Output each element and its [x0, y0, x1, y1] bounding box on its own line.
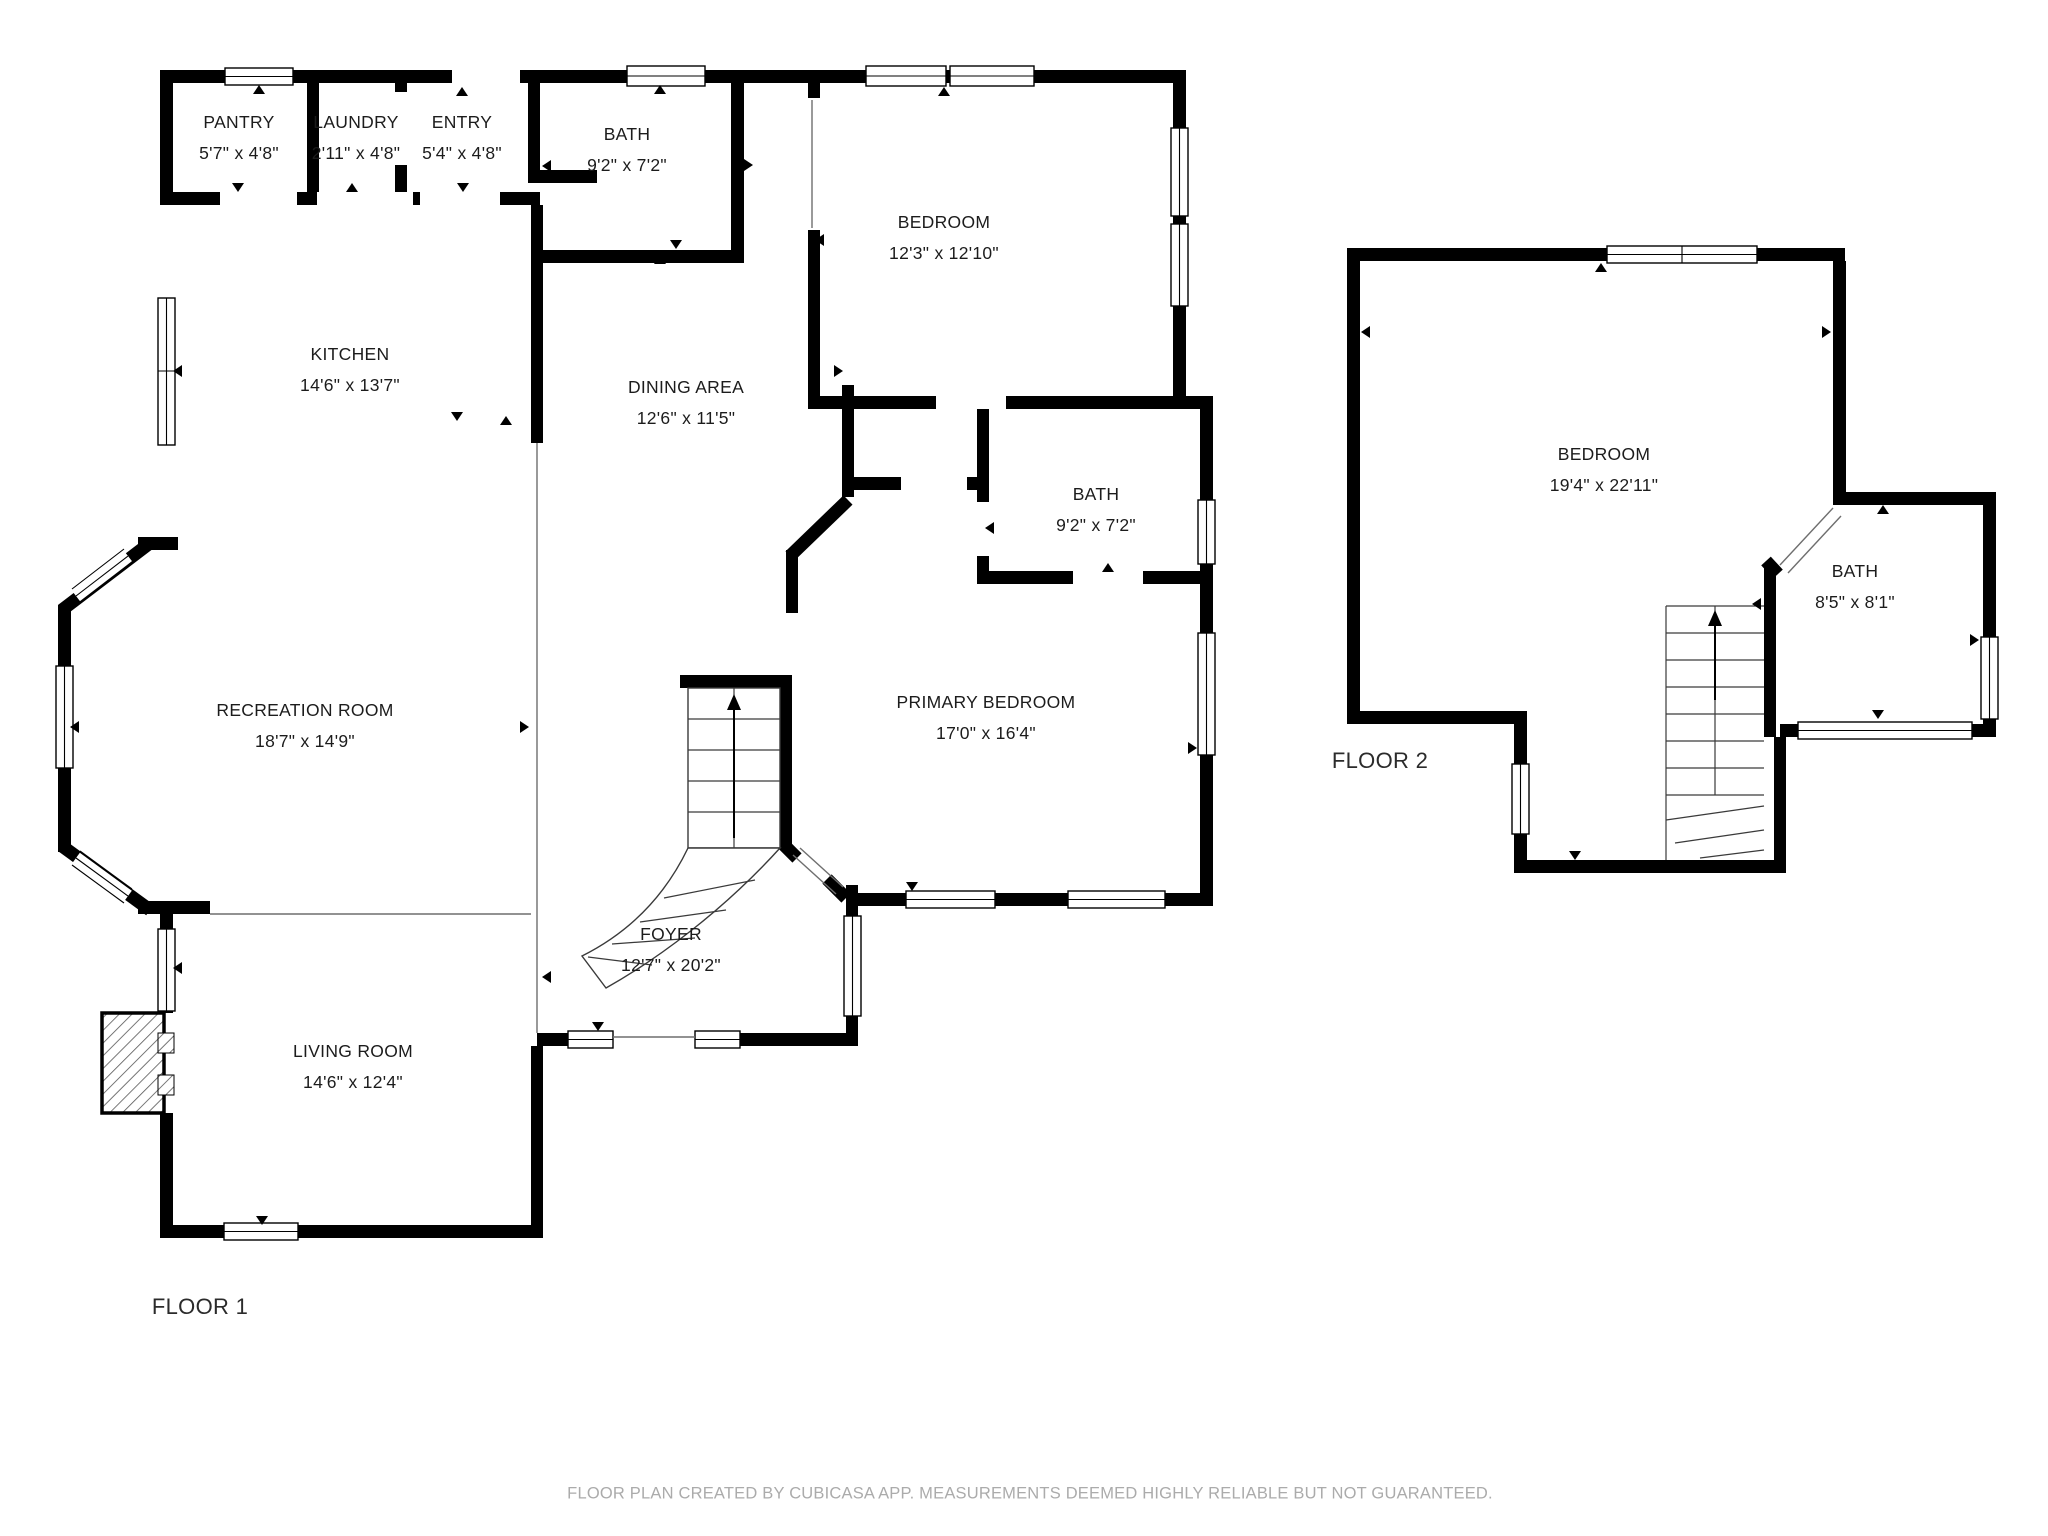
- room-label-bedroom-2: BEDROOM19'4" x 22'11": [1550, 444, 1659, 496]
- window-icon: [1512, 246, 1998, 834]
- floor-1-plan: [56, 66, 1215, 1240]
- room-name: BATH: [587, 124, 667, 145]
- room-name: BATH: [1056, 484, 1136, 505]
- room-label-bath-2: BATH9'2" x 7'2": [1056, 484, 1136, 536]
- room-name: KITCHEN: [300, 344, 400, 365]
- room-dimensions: 12'7" x 20'2": [621, 955, 721, 976]
- room-label-bedroom: BEDROOM12'3" x 12'10": [889, 212, 999, 264]
- room-name: BEDROOM: [1550, 444, 1659, 465]
- floor-2-stairs: [1666, 606, 1764, 860]
- room-dimensions: 12'6" x 11'5": [628, 408, 744, 429]
- room-dimensions: 12'3" x 12'10": [889, 243, 999, 264]
- room-dimensions: 8'5" x 8'1": [1815, 592, 1895, 613]
- room-label-dining-area: DINING AREA12'6" x 11'5": [628, 377, 744, 429]
- room-dimensions: 2'11" x 4'8": [312, 143, 401, 164]
- room-label-primary-bedroom: PRIMARY BEDROOM17'0" x 16'4": [897, 692, 1076, 744]
- room-dimensions: 5'7" x 4'8": [199, 143, 279, 164]
- room-name: LIVING ROOM: [293, 1041, 413, 1062]
- floor-2-label: FLOOR 2: [1332, 748, 1428, 774]
- room-label-bath: BATH9'2" x 7'2": [587, 124, 667, 176]
- room-name: PANTRY: [199, 112, 279, 133]
- floorplan-drawing: [0, 0, 2048, 1536]
- room-name: DINING AREA: [628, 377, 744, 398]
- room-label-recreation-room: RECREATION ROOM18'7" x 14'9": [216, 700, 393, 752]
- room-dimensions: 19'4" x 22'11": [1550, 475, 1659, 496]
- room-label-pantry: PANTRY5'7" x 4'8": [199, 112, 279, 164]
- window-icon: [56, 66, 1215, 1240]
- room-name: RECREATION ROOM: [216, 700, 393, 721]
- room-label-entry: ENTRY5'4" x 4'8": [422, 112, 502, 164]
- floorplan-canvas: FLOOR 1 FLOOR 2 FLOOR PLAN CREATED BY CU…: [0, 0, 2048, 1536]
- room-dimensions: 18'7" x 14'9": [216, 731, 393, 752]
- room-name: ENTRY: [422, 112, 502, 133]
- room-dimensions: 5'4" x 4'8": [422, 143, 502, 164]
- room-name: BATH: [1815, 561, 1895, 582]
- floor-2-plan: [1347, 246, 1998, 873]
- room-dimensions: 9'2" x 7'2": [1056, 515, 1136, 536]
- room-dimensions: 9'2" x 7'2": [587, 155, 667, 176]
- room-dimensions: 17'0" x 16'4": [897, 723, 1076, 744]
- floor-1-label: FLOOR 1: [152, 1294, 248, 1320]
- room-label-kitchen: KITCHEN14'6" x 13'7": [300, 344, 400, 396]
- disclaimer-text: FLOOR PLAN CREATED BY CUBICASA APP. MEAS…: [567, 1485, 1493, 1504]
- room-label-bath-3: BATH8'5" x 8'1": [1815, 561, 1895, 613]
- room-name: PRIMARY BEDROOM: [897, 692, 1076, 713]
- room-label-living-room: LIVING ROOM14'6" x 12'4": [293, 1041, 413, 1093]
- room-label-laundry: LAUNDRY2'11" x 4'8": [312, 112, 401, 164]
- room-label-foyer: FOYER12'7" x 20'2": [621, 924, 721, 976]
- room-dimensions: 14'6" x 12'4": [293, 1072, 413, 1093]
- fireplace-icon: [102, 1013, 175, 1113]
- room-dimensions: 14'6" x 13'7": [300, 375, 400, 396]
- room-name: LAUNDRY: [312, 112, 401, 133]
- room-name: FOYER: [621, 924, 721, 945]
- room-name: BEDROOM: [889, 212, 999, 233]
